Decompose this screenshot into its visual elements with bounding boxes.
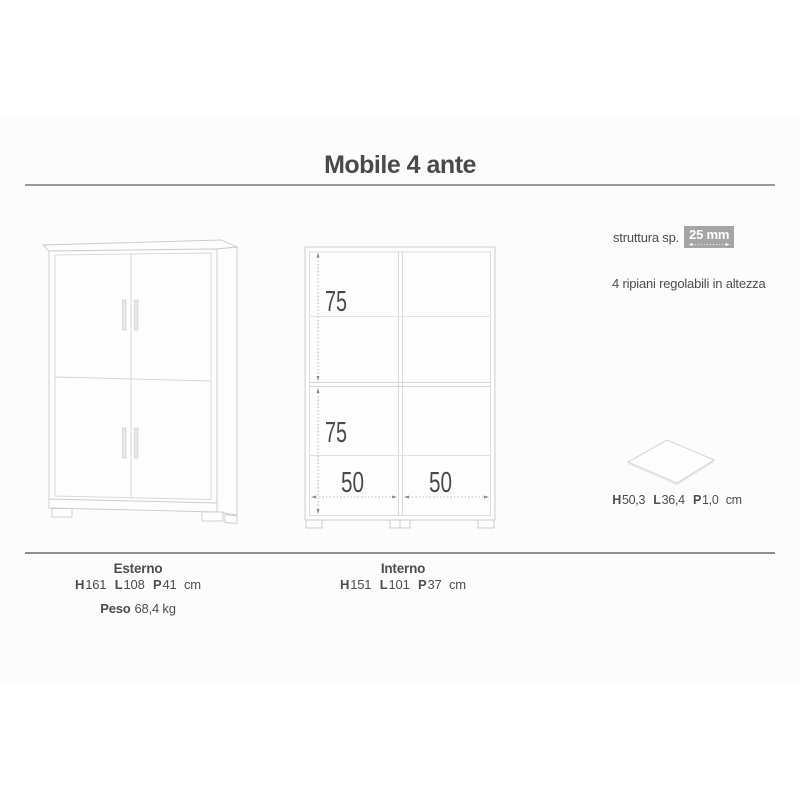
shelf-p-value: 1,0 [702, 493, 718, 507]
handle-upper-right [135, 300, 139, 330]
interior-center-foot-right [400, 520, 410, 528]
exterior-dimensions: H161 L108 P41 cm [38, 577, 238, 593]
interior-p-value: 37 [428, 577, 442, 592]
interior-l-value: 101 [389, 577, 410, 592]
exterior-specs-block: Esterno H161 L108 P41 cm Peso68,4 kg [38, 561, 238, 617]
shelf-h-label: H [612, 493, 621, 507]
cabinet-right-side [217, 247, 237, 515]
right-width-dimension-label: 50 [429, 467, 452, 499]
page-title: Mobile 4 ante [0, 151, 800, 180]
exterior-l-value: 108 [124, 577, 145, 592]
shelf-unit: cm [726, 493, 742, 507]
cabinet-right-foot [202, 512, 223, 521]
shelf-l-label: L [653, 493, 660, 507]
handle-lower-left [123, 428, 127, 458]
shelf-dimensions: H50,3 L36,4 P1,0 cm [612, 493, 742, 507]
shelf-panel-drawing [614, 432, 726, 490]
shelf-l-value: 36,4 [662, 493, 685, 507]
interior-specs-title: Interno [303, 561, 503, 577]
exterior-h-value: 161 [85, 577, 106, 592]
structure-label: struttura sp. [613, 230, 679, 245]
exterior-p-label: P [153, 577, 161, 592]
shelf-p-label: P [693, 493, 701, 507]
upper-height-dimension-label: 75 [325, 286, 347, 318]
exterior-h-label: H [75, 577, 84, 592]
interior-right-foot [478, 520, 494, 528]
exterior-l-label: L [115, 577, 123, 592]
structure-thickness-badge: 25 mm [684, 226, 734, 248]
shelves-note: 4 ripiani regolabili in altezza [612, 276, 766, 291]
interior-unit: cm [449, 577, 466, 592]
exterior-specs-title: Esterno [38, 561, 238, 577]
handle-upper-left [123, 300, 127, 330]
interior-left-foot [306, 520, 322, 528]
weight-line: Peso68,4 kg [38, 601, 238, 617]
exterior-p-value: 41 [163, 577, 177, 592]
interior-p-label: P [418, 577, 426, 592]
weight-label: Peso [100, 601, 130, 616]
exterior-cabinet-drawing [40, 238, 240, 530]
handle-lower-right [135, 428, 139, 458]
interior-specs-block: Interno H151 L101 P37 cm [303, 561, 503, 593]
structure-thickness-value: 25 mm [689, 227, 729, 242]
interior-center-foot-left [390, 520, 400, 528]
cabinet-side-foot [225, 515, 237, 524]
interior-h-label: H [340, 577, 349, 592]
footer-divider-line [25, 552, 775, 554]
interior-l-label: L [380, 577, 388, 592]
structure-spec-row: struttura sp. 25 mm [613, 226, 734, 248]
shelf-panel-face [628, 440, 714, 483]
shelf-h-value: 50,3 [622, 493, 645, 507]
interior-cabinet-drawing: 75 75 50 50 [300, 240, 500, 535]
cabinet-body [43, 240, 237, 524]
cabinet-left-foot [52, 509, 72, 518]
lower-height-dimension-label: 75 [325, 417, 347, 449]
title-divider-line [25, 184, 775, 186]
weight-value: 68,4 kg [135, 601, 176, 616]
badge-dimension-arrows-icon [688, 242, 730, 247]
interior-dimensions: H151 L101 P37 cm [303, 577, 503, 593]
left-width-dimension-label: 50 [341, 467, 364, 499]
interior-h-value: 151 [350, 577, 371, 592]
exterior-unit: cm [184, 577, 201, 592]
